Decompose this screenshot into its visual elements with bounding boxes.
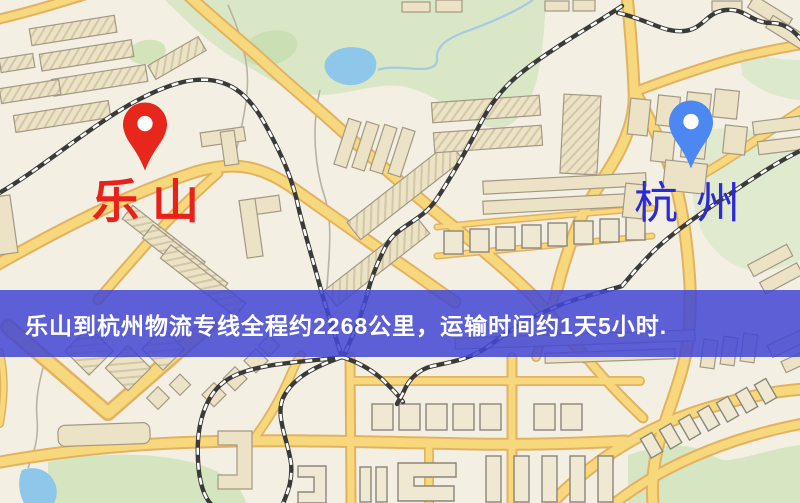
origin-pin-path: [123, 103, 167, 171]
route-info-banner: 乐山到杭州物流专线全程约2268公里，运输时间约1天5小时.: [0, 290, 800, 357]
origin-pin-hole: [137, 116, 152, 131]
route-info-text: 乐山到杭州物流专线全程约2268公里，运输时间约1天5小时.: [0, 307, 667, 341]
map-canvas: [0, 0, 800, 503]
origin-pin-icon[interactable]: [122, 101, 168, 173]
origin-label: 乐山: [92, 180, 212, 227]
destination-pin-path: [669, 101, 713, 169]
map-view: 乐山 杭州 乐山到杭州物流专线全程约2268公里，运输时间约1天5小时.: [0, 0, 800, 503]
destination-label: 杭州: [634, 182, 758, 226]
destination-pin-hole: [683, 114, 698, 129]
destination-pin-icon[interactable]: [668, 99, 714, 171]
